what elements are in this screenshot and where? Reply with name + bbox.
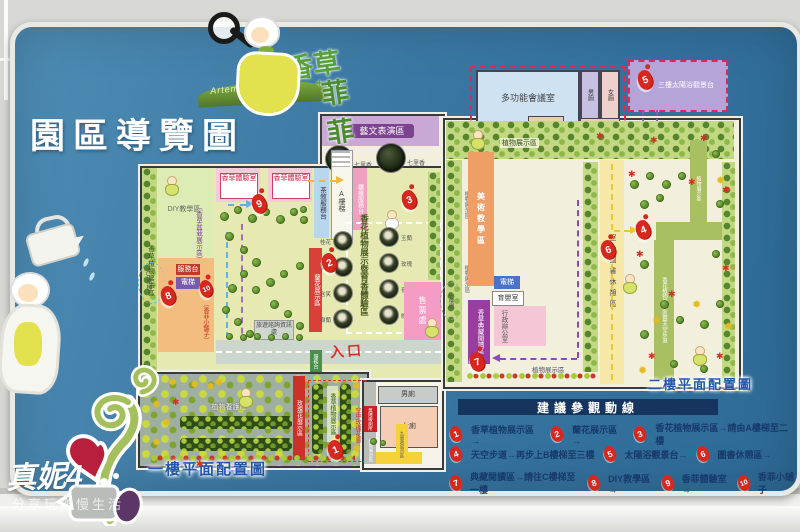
sun-deck-label: 三樓太陽浴觀景台 <box>658 80 714 90</box>
road-centerline <box>216 351 441 353</box>
water-drop <box>82 258 89 268</box>
rose-display-strip: 玫瑰花展示區 <box>293 376 305 460</box>
mascot2-face <box>18 284 38 302</box>
tree-icon <box>716 200 724 208</box>
tree-icon <box>276 215 285 224</box>
mascot-face <box>251 27 269 43</box>
gate-service-label: 服務台 <box>313 354 320 369</box>
route2-arrow-purple <box>492 354 500 362</box>
skywalk-path-label: 植物展示區 <box>694 162 704 214</box>
tree-icon <box>284 310 292 318</box>
entrance-label: 入口 <box>329 340 364 362</box>
legend-row-3: 7典藏閱讀區→請往C樓梯至一樓 8DIY教學區→ 9香菲體驗室→ 10香菲小舖子 <box>450 470 798 496</box>
tree-icon <box>234 318 242 326</box>
watermark-slogan: 分享玩樂慢生活 <box>12 494 124 513</box>
route-arrow-yellow <box>336 176 344 184</box>
tree-icon <box>700 320 709 329</box>
legend-footprint: 8 <box>586 473 603 492</box>
legend-item-text: 香草植物展示區→ <box>471 423 542 446</box>
flower-label: 玫瑰 <box>401 260 412 268</box>
sunflower-icon: ✹ <box>716 176 725 187</box>
pergola-strip-v: 九重葛展示區 <box>396 424 408 464</box>
legend-item-text: 香菲小舖子 <box>758 470 798 496</box>
flower-label: 含笑 <box>320 290 331 298</box>
fairy-sprite <box>622 274 636 292</box>
wall-frame-line-vertical <box>4 0 8 100</box>
floor2-women-toilet: 女廁 <box>600 70 620 120</box>
route-dashed-yellow <box>308 180 336 182</box>
legend-row-2: 4天空步道→再步上B樓梯至三樓 5太陽浴觀景台→ 6圖書休憩區→ <box>450 446 795 462</box>
scent-room-1-label: 香菲體驗室 <box>220 173 258 199</box>
route2-dashed-yellow <box>611 164 613 380</box>
orchid-strip-label: 蘭花展示區 <box>311 274 321 307</box>
legend-title-bar: 建議參觀動線 <box>458 399 718 415</box>
tree-icon <box>678 172 686 180</box>
tree-icon <box>712 250 720 258</box>
tree-icon <box>234 206 242 214</box>
legend-item-text: 典藏閱讀區→請往C樓梯至一樓 <box>470 470 580 496</box>
tea-service-label: 茶敘服務台 <box>317 187 327 220</box>
flower-photo-circle <box>380 280 398 298</box>
red-flower-icon: ✱ <box>716 352 724 361</box>
sunflower-icon: ✹ <box>190 380 199 391</box>
legend-item-text: 蘭花展示區→ <box>572 423 625 446</box>
fairy-sprite <box>470 130 484 148</box>
tree-icon <box>252 286 260 294</box>
red-flower-icon: ✱ <box>668 290 676 299</box>
tree-icon <box>676 316 684 324</box>
route2-yellow-arm <box>614 230 630 232</box>
tree-icon <box>640 330 649 339</box>
tree-photo-circle <box>377 144 405 172</box>
route2-dashed-purple-v <box>577 200 579 358</box>
tree-icon <box>248 214 257 223</box>
sunflower-icon: ✹ <box>352 382 361 393</box>
class-strip: 美術教學區 <box>468 152 494 286</box>
stairs-c-label: C樓梯 <box>144 266 153 296</box>
tree-icon <box>670 360 678 368</box>
legend-item-text: 圖書休憩區→ <box>718 448 772 461</box>
red-flower-icon: ✱ <box>172 398 180 407</box>
legend-footprint: 9 <box>659 473 676 492</box>
red-flower-icon: ✱ <box>648 352 656 361</box>
fairy-sprite <box>424 318 438 336</box>
red-flower-icon: ✱ <box>636 250 644 259</box>
flower-photo-circle <box>380 306 398 324</box>
tea-service-strip: 茶敘服務台 <box>314 168 329 238</box>
flower-photo-circle <box>334 284 352 302</box>
tree-icon <box>296 262 304 270</box>
hedge-row <box>180 416 292 429</box>
flower-label: 玉蘭 <box>401 234 412 242</box>
skywalk-label: 香花植物展示區暨天空步道 <box>660 277 668 343</box>
red-flower-icon: ✱ <box>688 178 696 187</box>
hedge-row <box>180 438 292 451</box>
tree-icon <box>640 260 649 269</box>
tree-icon <box>300 206 307 213</box>
water-drop <box>88 272 95 282</box>
stairs-a-label: A樓梯 <box>336 184 346 218</box>
admin-office-label: 行政辦公室 <box>498 308 508 344</box>
tree-icon <box>266 278 275 287</box>
tree-icon <box>716 300 724 308</box>
stairs-a-hatch <box>332 151 350 167</box>
tree-icon <box>300 216 308 224</box>
floor2-elevator: 電梯 <box>494 276 520 289</box>
sunflower-icon: ✹ <box>214 378 223 389</box>
scent-room-2-label: 香菲體驗室 <box>272 173 310 199</box>
tree-icon <box>240 246 248 254</box>
tree-icon <box>656 194 664 202</box>
fairy-sprite <box>692 346 706 364</box>
flower-photo-circle <box>380 254 398 272</box>
sunflower-icon: ✹ <box>692 300 701 311</box>
accessible-toilet: 無障礙廁所 <box>364 406 377 432</box>
sunflower-icon: ✹ <box>206 382 215 393</box>
tree-icon <box>662 180 671 189</box>
floor2-plant-label: 植物展示區 <box>500 138 539 148</box>
service-desk-box: 服務台 <box>176 264 200 275</box>
red-flower-icon: ✱ <box>722 186 730 195</box>
floor2-men-label: 男廁 <box>586 89 595 101</box>
skywalk-path-v2: 香花植物展示區暨天空步道 <box>654 240 674 380</box>
floor2-women-label: 女廁 <box>606 89 615 101</box>
flower-label: 桂花 <box>320 238 331 246</box>
floor2-men-toilet: 男廁 <box>580 70 600 120</box>
tree-icon <box>370 438 377 445</box>
hedge-column <box>340 384 351 454</box>
accessible-toilet-label: 無障礙廁所 <box>368 408 374 431</box>
legend-item-text: DIY教學區→ <box>608 472 654 495</box>
scent-center-title: 香花植物展示暨育香體驗區 <box>358 206 371 324</box>
tree-icon <box>280 270 288 278</box>
tree-icon <box>268 334 275 341</box>
floor2-bottom-dots <box>466 372 596 381</box>
floor2-mid-trees <box>583 162 598 372</box>
legend-footprint: 3 <box>632 424 649 443</box>
floor2-stairs-c-label: C樓梯 <box>446 286 455 314</box>
legend-footprint: 4 <box>448 444 465 463</box>
flower-photo-circle <box>380 228 398 246</box>
legend-footprint: 2 <box>549 424 566 443</box>
tree-icon <box>240 334 247 341</box>
floor2-caption: 二樓平面配置圖 <box>648 374 753 393</box>
fairy-sprite <box>238 388 252 406</box>
rose-strip-label: 玫瑰花展示區 <box>295 400 304 436</box>
flower-photo-circle <box>334 310 352 328</box>
red-flower-icon: ✱ <box>196 460 204 469</box>
tree-icon <box>296 334 303 341</box>
mascot2-apron <box>14 322 42 366</box>
tree-icon <box>380 440 386 446</box>
tree-icon <box>296 322 304 330</box>
gate-service-box: 服務台 <box>310 350 322 372</box>
watermark-name: 真妮4 <box>5 451 83 498</box>
tree-row-east <box>428 172 440 280</box>
red-flower-icon: ✱ <box>596 132 604 141</box>
flower-label: 樹蘭 <box>320 316 331 324</box>
tree-icon <box>290 208 298 216</box>
sunflower-icon: ✹ <box>724 322 733 333</box>
sunflower-icon: ✹ <box>652 316 661 327</box>
sunflower-icon: ✹ <box>638 366 647 377</box>
legend-row-1: 1香草植物展示區→ 2蘭花展示區→ 3香花植物展示區→請由A樓梯至二樓 <box>450 421 795 447</box>
tree-icon <box>246 330 254 338</box>
tree-icon <box>630 180 639 189</box>
legend-footprint: 6 <box>694 444 711 463</box>
red-flower-icon: ✱ <box>700 134 708 143</box>
floor2-left-trees <box>446 160 462 382</box>
tree-icon <box>712 150 720 158</box>
men-toilet: 男廁 <box>378 386 438 404</box>
legend-footprint: 1 <box>448 424 465 443</box>
fairy-sprite <box>164 176 178 194</box>
mascot-dress <box>234 50 301 117</box>
route-dashed-purple <box>241 224 243 344</box>
class-strip-label: 美術教學區 <box>476 192 487 247</box>
tree-icon <box>254 333 261 340</box>
pergola-label: 九重葛展示區 <box>399 431 405 458</box>
sunflower-icon: ✹ <box>352 444 361 455</box>
tree-icon <box>252 258 261 267</box>
route2-dashed-purple-h <box>500 358 577 360</box>
elevator-box: 電梯 <box>176 277 200 289</box>
red-flower-icon: ✱ <box>650 136 658 145</box>
tree-icon <box>228 284 237 293</box>
legend-item-text: 天空步道→再步上B樓梯至三樓 <box>471 448 595 461</box>
legend-item-text: 太陽浴觀景台→ <box>625 448 688 461</box>
tree-icon <box>646 172 654 180</box>
tree-icon <box>282 333 289 340</box>
red-flower-icon: ✱ <box>722 264 730 273</box>
tree-photo-label: 七里香 <box>407 158 425 167</box>
tree-icon <box>226 333 233 340</box>
mascot-magnifier-character <box>200 0 330 122</box>
tree-icon <box>225 232 234 241</box>
women-toilet: 女廁 <box>380 406 438 448</box>
tree-icon <box>640 200 649 209</box>
legend-footprint: 7 <box>448 473 465 492</box>
legend-footprint: 5 <box>601 444 618 463</box>
legend-item-text: 香菲體驗室→ <box>682 472 730 495</box>
tree-icon <box>220 212 229 221</box>
red-flower-icon: ✱ <box>628 170 636 179</box>
tree-icon <box>700 365 708 373</box>
flower-photo-circle <box>334 232 352 250</box>
shop-tag-label: 〔香菲小舖子〕 <box>200 300 211 344</box>
tree-icon <box>660 300 669 309</box>
chef-fairy-sprite <box>384 210 398 228</box>
nursing-room: 育嬰室 <box>492 291 524 306</box>
tree-icon <box>240 270 248 278</box>
tree-icon <box>222 306 230 314</box>
legend-footprint: 10 <box>735 473 752 492</box>
hedge-column <box>312 384 323 454</box>
tree-icon <box>270 300 279 309</box>
legend-item-text: 香花植物展示區→請由A樓梯至二樓 <box>655 421 795 447</box>
legend-title: 建議參觀動線 <box>537 399 639 416</box>
